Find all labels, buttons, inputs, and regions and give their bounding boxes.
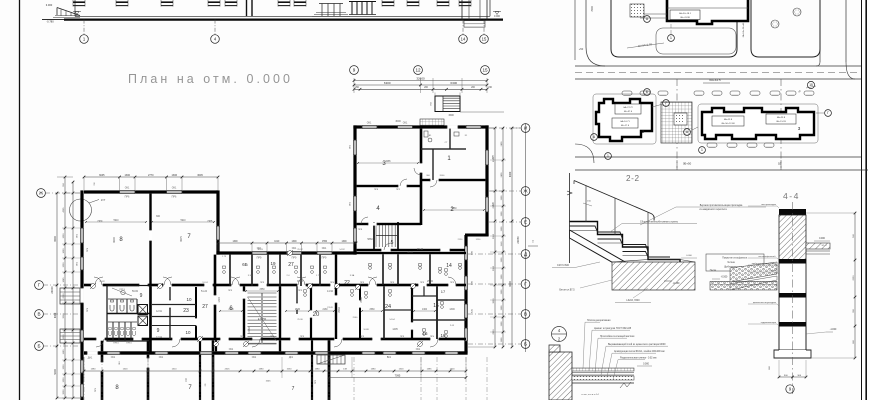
svg-text:ПР15: ПР15	[113, 343, 119, 345]
svg-text:1: 1	[607, 154, 609, 158]
svg-text:1385: 1385	[427, 368, 433, 370]
svg-text:Б: Б	[524, 342, 527, 347]
svg-text:1300: 1300	[341, 241, 347, 243]
svg-text:0Б+17.6: 0Б+17.6	[621, 125, 630, 127]
svg-text:3.3А: 3.3А	[350, 274, 355, 277]
svg-text:23: 23	[183, 308, 189, 314]
svg-text:2325: 2325	[225, 368, 231, 370]
svg-text:ие из асфальтоб.: ие из асфальтоб.	[758, 255, 776, 258]
svg-text:2-2: 2-2	[626, 174, 640, 183]
svg-text:0.000: 0.000	[494, 15, 501, 18]
svg-text:ОК1: ОК1	[322, 247, 327, 250]
svg-text:ОК1: ОК1	[252, 357, 257, 359]
svg-text:5860: 5860	[367, 238, 373, 241]
svg-text:14: 14	[446, 263, 452, 269]
svg-text:1250: 1250	[476, 239, 482, 241]
svg-text:14.92: 14.92	[327, 290, 334, 293]
svg-text:1300: 1300	[63, 233, 65, 239]
svg-text:1300: 1300	[63, 377, 65, 383]
svg-text:1300: 1300	[123, 368, 129, 370]
svg-text:3: 3	[798, 126, 801, 131]
svg-text:Г: Г	[827, 111, 829, 115]
svg-text:ПР6: ПР6	[125, 196, 130, 199]
svg-text:ОК1: ОК1	[292, 247, 297, 250]
svg-text:0A+27.72: 0A+27.72	[623, 106, 633, 109]
svg-text:2: 2	[642, 129, 645, 134]
svg-text:ЭР+Л: ЭР+Л	[821, 245, 827, 247]
svg-text:0A+12.8: 0A+12.8	[724, 118, 733, 121]
svg-text:Разделительная пленка - 0.02 м: Разделительная пленка - 0.02 мм	[620, 358, 657, 360]
svg-text:1: 1	[701, 148, 703, 152]
svg-text:0A+42.5: 0A+42.5	[709, 78, 721, 82]
svg-text:4395: 4395	[63, 207, 65, 213]
svg-text:14: 14	[461, 37, 466, 42]
svg-text:Армирующая сетка Ф10х1, ячейки: Армирующая сетка Ф10х1, ячейки 200х200 м…	[614, 350, 665, 353]
svg-text:ПР9: ПР9	[98, 220, 103, 223]
svg-text:23050: 23050	[516, 236, 520, 244]
svg-text:цементная штукатурка: цементная штукатурка	[753, 302, 777, 304]
svg-text:3000: 3000	[493, 298, 495, 304]
svg-text:0Б+50: 0Б+50	[683, 162, 692, 166]
svg-text:6000: 6000	[509, 171, 512, 177]
svg-text:3.000: 3.000	[46, 3, 53, 7]
svg-text:6300: 6300	[450, 81, 457, 85]
svg-text:25.32: 25.32	[297, 249, 303, 251]
svg-text:1545: 1545	[266, 381, 272, 383]
svg-text:5910: 5910	[113, 220, 119, 222]
svg-text:1405: 1405	[392, 328, 398, 331]
svg-text:3000: 3000	[395, 120, 401, 123]
svg-text:9675: 9675	[180, 236, 183, 242]
svg-text:12.91: 12.91	[156, 311, 162, 313]
svg-text:Цемент штукатурки ГОСТ 6621-88: Цемент штукатурки ГОСТ 6621-88	[594, 328, 632, 330]
svg-text:14.04: 14.04	[389, 319, 395, 321]
svg-text:1: 1	[670, 36, 672, 40]
svg-text:ПР9: ПР9	[322, 257, 327, 260]
svg-text:1300: 1300	[63, 334, 65, 340]
svg-text:ПР9: ПР9	[292, 257, 297, 260]
svg-text:38.63: 38.63	[297, 280, 304, 283]
svg-text:ОК1: ОК1	[416, 349, 421, 351]
svg-text:3.3А: 3.3А	[248, 274, 253, 277]
svg-text:0A+23.8: 0A+23.8	[777, 116, 786, 119]
svg-text:Плитка декоративная: Плитка декоративная	[587, 320, 611, 322]
svg-text:3045: 3045	[197, 174, 203, 177]
svg-text:щебеночная подготовка: щебеночная подготовка	[752, 263, 777, 265]
svg-text:2530: 2530	[295, 309, 301, 311]
svg-text:2160: 2160	[248, 327, 251, 333]
svg-text:6000: 6000	[54, 312, 57, 318]
svg-text:ПР9: ПР9	[257, 257, 262, 260]
svg-text:22: 22	[344, 280, 350, 286]
svg-text:0А+50а 2Б+40: 0А+50а 2Б+40	[742, 22, 745, 37]
svg-text:1380: 1380	[259, 368, 265, 370]
svg-text:В: В	[37, 312, 40, 317]
svg-text:3000: 3000	[63, 389, 65, 395]
svg-text:1300: 1300	[63, 364, 65, 370]
svg-text:1380: 1380	[91, 368, 97, 370]
svg-text:25.36: 25.36	[297, 319, 303, 321]
svg-text:7095: 7095	[395, 373, 401, 377]
svg-text:1300: 1300	[63, 262, 65, 268]
svg-text:ная прокладка: ная прокладка	[761, 204, 777, 206]
svg-text:1300: 1300	[450, 368, 456, 370]
svg-text:12: 12	[415, 68, 421, 73]
svg-text:2000: 2000	[440, 175, 446, 177]
svg-text:-0.780: -0.780	[46, 20, 54, 24]
svg-text:1300: 1300	[232, 241, 238, 243]
svg-text:ВК1: ВК1	[387, 357, 392, 359]
svg-text:9: 9	[353, 68, 356, 73]
svg-text:Покрытие из асфальтог.: Покрытие из асфальтог.	[722, 257, 748, 260]
svg-text:Прослойка из клеящей мастики: Прослойка из клеящей мастики	[600, 335, 635, 338]
svg-text:ОК1: ОК1	[111, 357, 116, 359]
svg-text:300: 300	[156, 215, 161, 218]
svg-text:Бетон кл.В7,5: Бетон кл.В7,5	[559, 289, 575, 292]
svg-text:0Б+50+12.68: 0Б+50+12.68	[721, 123, 735, 125]
svg-text:Песок: Песок	[710, 270, 717, 272]
svg-text:С2Л h=600: С2Л h=600	[557, 264, 570, 267]
svg-text:1300: 1300	[399, 368, 405, 370]
svg-text:0Б+37.6: 0Б+37.6	[624, 111, 633, 113]
svg-text:16: 16	[440, 333, 446, 338]
svg-text:1645: 1645	[63, 277, 65, 283]
svg-text:2150: 2150	[458, 239, 464, 241]
svg-text:1380: 1380	[315, 368, 321, 370]
svg-text:1550: 1550	[287, 368, 293, 370]
svg-text:-0.450: -0.450	[673, 282, 680, 285]
svg-text:ДК1: ДК1	[289, 357, 294, 359]
svg-text:8600: 8600	[113, 237, 116, 243]
svg-text:5: 5	[391, 240, 394, 246]
svg-text:25.32: 25.32	[427, 280, 434, 283]
svg-text:56.82: 56.82	[132, 290, 139, 293]
svg-text:0A+10.71: 0A+10.71	[620, 120, 630, 123]
svg-text:1300: 1300	[422, 309, 428, 311]
svg-text:Т: Т	[532, 240, 534, 244]
svg-text:ПР5: ПР5	[208, 220, 213, 223]
svg-text:20: 20	[313, 312, 320, 318]
svg-text:1300: 1300	[291, 241, 297, 243]
svg-text:10: 10	[186, 297, 192, 302]
svg-text:1300: 1300	[124, 174, 130, 177]
svg-text:бетона: бетона	[727, 262, 735, 264]
svg-text:27: 27	[288, 262, 294, 268]
svg-text:7: 7	[292, 386, 295, 392]
svg-text:6Б: 6Б	[242, 262, 248, 267]
svg-text:15: 15	[482, 68, 488, 73]
svg-text:3010: 3010	[63, 313, 65, 319]
svg-text:ОК1: ОК1	[229, 349, 234, 351]
svg-text:2530: 2530	[338, 307, 341, 313]
svg-text:гидроизоляция: гидроизоляция	[761, 322, 777, 324]
svg-text:Верхняя противоскользящая прок: Верхняя противоскользящая прокладка	[700, 205, 743, 207]
svg-text:1550: 1550	[322, 241, 328, 243]
svg-text:ОК1: ОК1	[367, 122, 372, 125]
svg-text:5200: 5200	[54, 369, 57, 375]
svg-text:И: И	[524, 126, 527, 131]
svg-text:6300: 6300	[384, 81, 391, 85]
svg-text:1500: 1500	[448, 114, 454, 117]
svg-text:27: 27	[202, 304, 208, 310]
svg-text:2550: 2550	[259, 289, 265, 291]
svg-text:План на отм. 0.000: План на отм. 0.000	[128, 72, 293, 86]
svg-text:16: 16	[422, 331, 428, 336]
svg-text:45.43: 45.43	[407, 252, 413, 254]
svg-text:2850: 2850	[493, 203, 495, 209]
svg-text:1420: 1420	[218, 297, 221, 303]
svg-text:38.63: 38.63	[257, 249, 263, 251]
svg-text:0Б+15.93: 0Б+15.93	[776, 121, 786, 123]
svg-text:6085: 6085	[385, 161, 391, 163]
svg-text:1060: 1060	[63, 248, 65, 254]
svg-text:ДН1: ДН1	[88, 358, 93, 360]
svg-text:ОК1: ОК1	[172, 187, 177, 190]
svg-text:6000: 6000	[493, 156, 495, 162]
svg-text:1160: 1160	[63, 349, 65, 354]
svg-text:1300: 1300	[449, 308, 455, 311]
svg-text:9000: 9000	[54, 236, 57, 242]
svg-text:14.92: 14.92	[339, 249, 345, 251]
svg-text:ОК1: ОК1	[125, 187, 130, 190]
svg-text:ОК1: ОК1	[159, 357, 164, 359]
svg-text:51.24: 51.24	[202, 282, 208, 284]
svg-text:15: 15	[433, 303, 439, 309]
svg-text:2000: 2000	[63, 293, 65, 299]
svg-text:4-4: 4-4	[783, 191, 800, 201]
svg-text:-1.840: -1.840	[830, 329, 837, 331]
svg-text:1010: 1010	[274, 241, 280, 243]
svg-text:2560: 2560	[353, 317, 359, 319]
svg-text:9: 9	[157, 328, 160, 334]
svg-text:19: 19	[270, 261, 276, 266]
svg-text:СО: СО	[185, 378, 188, 382]
svg-text:56.82: 56.82	[99, 281, 105, 283]
svg-text:1УГ: 1УГ	[101, 198, 106, 202]
svg-text:51.24: 51.24	[201, 290, 208, 293]
svg-text:0.000: 0.000	[643, 364, 649, 366]
svg-text:2560: 2560	[369, 309, 375, 311]
svg-text:2160: 2160	[322, 309, 328, 311]
svg-text:6000: 6000	[509, 281, 512, 287]
svg-text:15: 15	[482, 37, 487, 42]
svg-text:из наждачного переплета: из наждачного переплета	[699, 209, 727, 211]
svg-text:Е: Е	[524, 220, 527, 225]
svg-text:7000: 7000	[591, 6, 594, 12]
svg-text:0.000: 0.000	[819, 238, 825, 240]
svg-text:L62x6, h500: L62x6, h500	[626, 299, 640, 302]
svg-text:2850: 2850	[493, 329, 495, 335]
svg-text:Е.6.750: Е.6.750	[258, 318, 267, 321]
svg-text:10: 10	[185, 330, 191, 335]
svg-text:1380: 1380	[371, 368, 377, 370]
svg-text:-0.500: -0.500	[721, 277, 728, 279]
svg-text:0Б+41.98: 0Б+41.98	[680, 17, 690, 19]
svg-text:1306: 1306	[171, 174, 177, 177]
svg-text:ПР15: ПР15	[126, 343, 132, 345]
svg-text:1310: 1310	[172, 368, 178, 370]
svg-text:9: 9	[140, 293, 143, 299]
svg-text:В: В	[524, 312, 527, 317]
svg-text:Б: Б	[37, 344, 40, 349]
svg-text:17.04: 17.04	[156, 337, 162, 339]
svg-text:45.43: 45.43	[417, 248, 424, 251]
svg-text:Р.543: Р.543	[327, 307, 333, 309]
svg-text:17: 17	[441, 289, 446, 294]
svg-text:то же, что и в 4-4: то же, что и в 4-4	[581, 394, 599, 396]
svg-text:2050: 2050	[853, 275, 855, 281]
svg-text:ПР13: ПР13	[119, 289, 125, 291]
svg-text:ПР6: ПР6	[172, 196, 177, 199]
svg-text:2568: 2568	[360, 297, 363, 303]
svg-text:7: 7	[665, 101, 667, 105]
svg-text:ОК1: ОК1	[403, 122, 408, 125]
svg-text:3045: 3045	[99, 174, 105, 177]
svg-text:2770: 2770	[148, 174, 154, 177]
svg-text:+50: +50	[579, 47, 584, 51]
svg-text:5910: 5910	[180, 220, 186, 222]
svg-text:24000: 24000	[50, 286, 54, 294]
svg-text:песок: песок	[770, 270, 776, 272]
svg-text:24: 24	[385, 304, 391, 310]
svg-text:16.88: 16.88	[363, 329, 369, 331]
svg-text:0.000: 0.000	[686, 255, 692, 257]
svg-text:Выравнивающий слой из цементно: Выравнивающий слой из цементного раствор…	[608, 343, 666, 346]
svg-text:0A+50+18.1: 0A+50+18.1	[679, 12, 692, 15]
